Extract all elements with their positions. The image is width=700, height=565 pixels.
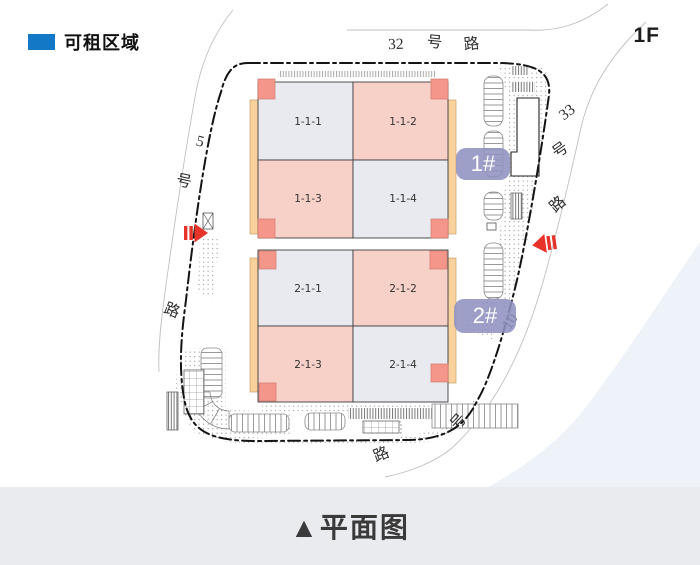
unit-2-1-3-label: 2-1-3 <box>294 359 322 371</box>
svg-text:1#: 1# <box>471 151 496 176</box>
legend: 可租区域 <box>28 29 140 55</box>
background-wash <box>488 242 700 487</box>
svg-text:33: 33 <box>556 101 579 124</box>
building-1-badge: 1# <box>456 148 510 180</box>
stair-core <box>430 251 447 269</box>
parking-strip <box>484 76 503 126</box>
building-2: 2-1-1 2-1-2 2-1-3 2-1-4 <box>250 250 456 402</box>
stair-core <box>258 219 275 238</box>
svg-text:号: 号 <box>549 138 572 162</box>
canopy-right <box>448 100 456 234</box>
svg-text:路: 路 <box>161 299 183 322</box>
stair-core <box>258 79 275 99</box>
parking-strip <box>432 404 518 428</box>
parking-strip <box>484 243 503 299</box>
svg-text:路: 路 <box>546 192 570 216</box>
svg-text:5: 5 <box>194 132 206 150</box>
hatch-top-right-1 <box>511 66 528 75</box>
building-1: 1-1-1 1-1-2 1-1-3 1-1-4 <box>250 79 456 238</box>
plan-caption: ▲平面图 <box>290 506 410 546</box>
striped-strip-right <box>511 193 522 219</box>
unit-1-1-3-label: 1-1-3 <box>294 193 322 205</box>
unit-2-1-1-label: 2-1-1 <box>294 283 322 295</box>
site-plan-svg: 1-1-1 1-1-2 1-1-3 1-1-4 2-1-1 2-1-2 2-1-… <box>0 0 700 487</box>
site-plan-page: 1-1-1 1-1-2 1-1-3 1-1-4 2-1-1 2-1-2 2-1-… <box>0 0 700 565</box>
parking-strip <box>484 192 503 220</box>
parking-strip <box>305 413 345 430</box>
striped-strip-left <box>167 392 178 430</box>
entrance-arrow-right <box>531 233 557 255</box>
stair-core <box>431 79 448 99</box>
hatch-top-right-2 <box>511 82 535 92</box>
svg-text:路: 路 <box>463 34 481 54</box>
svg-text:号: 号 <box>426 32 443 52</box>
parking-grid <box>184 370 204 414</box>
road-edge-top-right <box>528 4 608 30</box>
legend-rentable-label: 可租区域 <box>64 29 140 55</box>
canopy-left <box>250 100 258 234</box>
kiosk-box <box>487 223 496 230</box>
floor-label: 1F <box>633 24 660 48</box>
unit-1-1-2-label: 1-1-2 <box>389 116 417 128</box>
gate-symbol <box>203 213 213 229</box>
stair-core <box>431 364 448 382</box>
road-label-top: 32 号 路 <box>388 32 481 54</box>
hatch-bottom <box>348 408 434 419</box>
stair-core <box>259 251 276 269</box>
unit-2-1-4-label: 2-1-4 <box>389 359 417 371</box>
paving-left-gate <box>198 236 220 300</box>
svg-text:路: 路 <box>371 443 393 466</box>
building-2-badge: 2# <box>454 299 516 333</box>
stair-core <box>431 219 448 238</box>
svg-text:2#: 2# <box>473 303 498 328</box>
caption-band: ▲平面图 <box>0 487 700 565</box>
legend-rentable-swatch <box>28 34 55 50</box>
stair-core <box>259 383 276 401</box>
parking-grid <box>363 421 399 433</box>
canopy-left <box>250 258 258 392</box>
svg-text:32: 32 <box>388 36 404 54</box>
unit-2-1-2-label: 2-1-2 <box>389 283 417 295</box>
parking-strip <box>229 414 289 432</box>
unit-1-1-4-label: 1-1-4 <box>389 193 417 205</box>
unit-1-1-1-label: 1-1-1 <box>294 116 322 128</box>
hatch-above-building1 <box>278 71 436 77</box>
svg-text:号: 号 <box>175 171 194 192</box>
